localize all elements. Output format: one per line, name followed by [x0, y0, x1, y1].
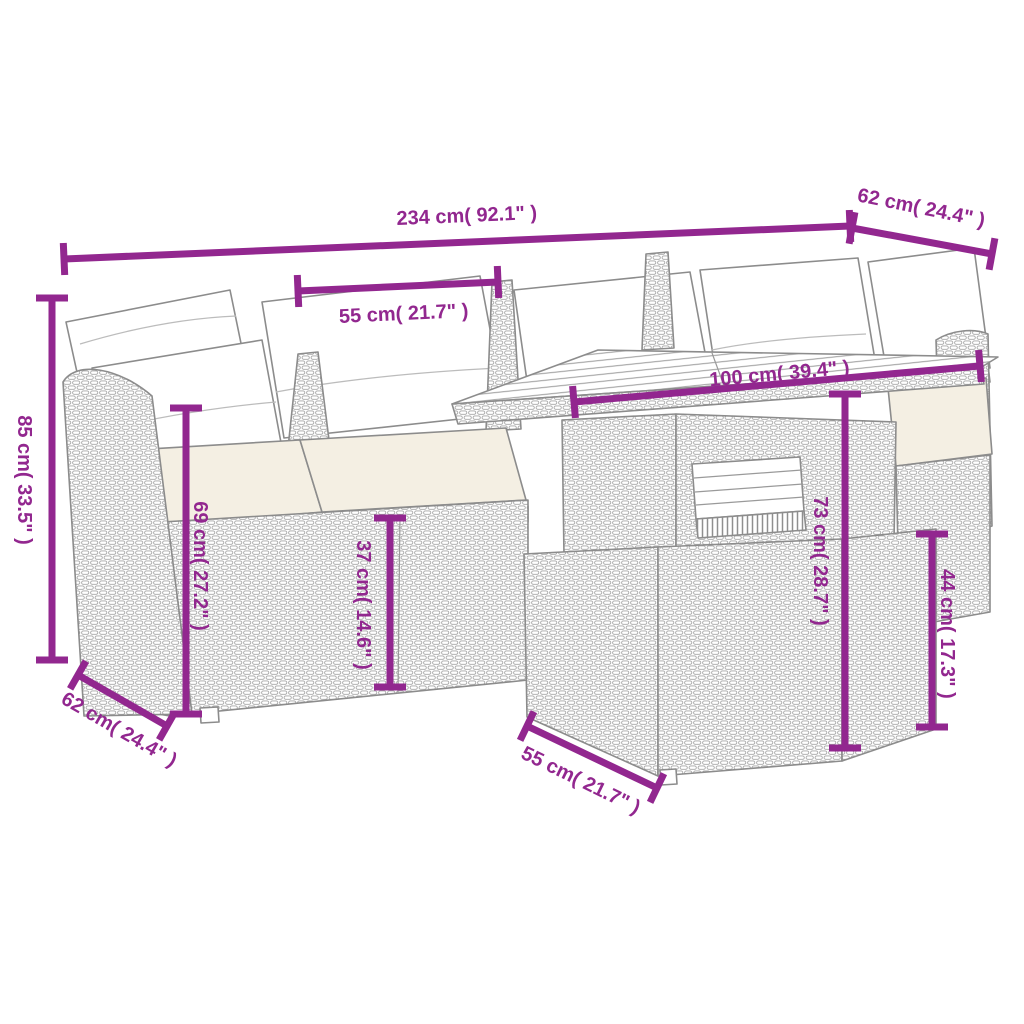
diagram-canvas: 234 cm( 92.1" ) 62 cm( 24.4" ) 55 cm( 21…: [0, 0, 1024, 1024]
dimension-tick: [573, 386, 576, 418]
dimension-tick: [979, 350, 982, 382]
dimension-tick: [297, 275, 298, 307]
dimension-label: 62 cm( 24.4" ): [856, 184, 987, 231]
furniture-foot: [200, 707, 219, 723]
dimension-total-height: 85 cm( 33.5" ): [13, 298, 68, 660]
ottoman: [524, 547, 658, 776]
wicker-post: [642, 252, 674, 350]
dimension-tick: [63, 243, 64, 275]
dimension-tick: [497, 266, 498, 298]
dimension-label: 85 cm( 33.5" ): [13, 415, 35, 545]
dimension-total-width: 234 cm( 92.1" ): [63, 202, 850, 275]
seat-cushion-2: [300, 428, 526, 512]
dimension-tick: [989, 238, 995, 269]
product-dimension-diagram: 234 cm( 92.1" ) 62 cm( 24.4" ) 55 cm( 21…: [0, 0, 1024, 1024]
dimension-label: 37 cm( 14.6" ): [352, 540, 374, 670]
dimension-label: 69 cm( 27.2" ): [189, 501, 211, 631]
right-seat-cushion: [888, 378, 992, 466]
dimension-line: [852, 228, 992, 254]
dimension-line: [64, 226, 850, 259]
dimension-label: 44 cm( 17.3" ): [936, 569, 958, 699]
dimension-label: 234 cm( 92.1" ): [396, 202, 537, 230]
dimension-label: 73 cm( 28.7" ): [809, 496, 831, 626]
